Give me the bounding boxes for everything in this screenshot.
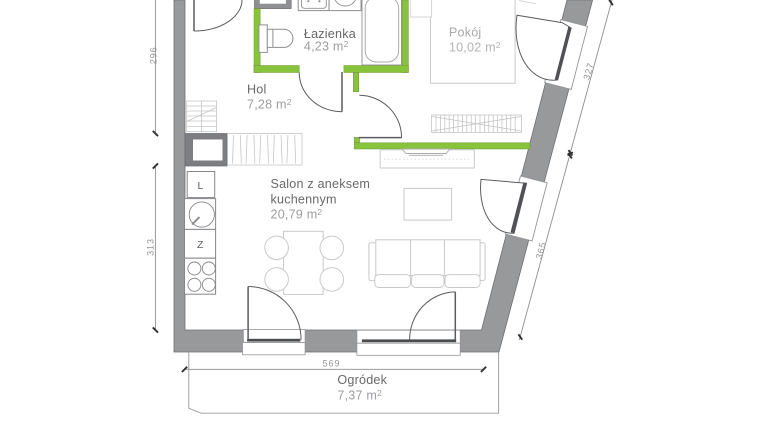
svg-text:20,79 m2: 20,79 m2 <box>271 207 323 222</box>
svg-text:kuchennym: kuchennym <box>271 192 337 206</box>
svg-text:Z: Z <box>197 239 204 251</box>
svg-text:10,02 m2: 10,02 m2 <box>449 40 501 55</box>
svg-text:Pokój: Pokój <box>449 25 482 39</box>
svg-text:Salon z aneksem: Salon z aneksem <box>271 177 371 191</box>
svg-text:4,23 m2: 4,23 m2 <box>304 39 349 54</box>
svg-text:313: 313 <box>146 238 156 256</box>
svg-text:Hol: Hol <box>247 82 267 96</box>
svg-text:7,28 m2: 7,28 m2 <box>247 97 292 112</box>
svg-text:Ogródek: Ogródek <box>337 373 387 387</box>
svg-text:296: 296 <box>148 46 158 64</box>
svg-text:569: 569 <box>323 359 341 369</box>
svg-text:L: L <box>198 180 204 192</box>
svg-text:7,37 m2: 7,37 m2 <box>337 388 382 403</box>
